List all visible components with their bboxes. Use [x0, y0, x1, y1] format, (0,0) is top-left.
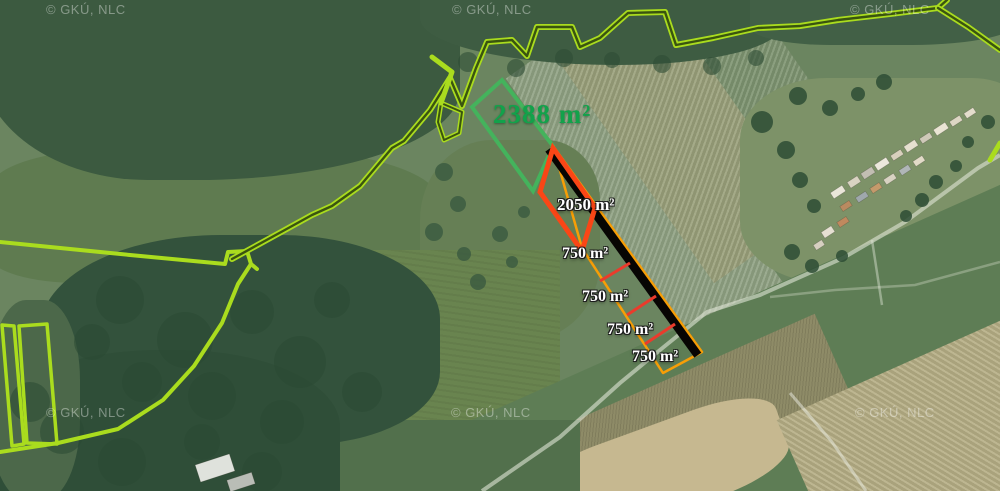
house-roof: [847, 176, 861, 188]
lot-divider-line-1: [600, 263, 630, 281]
house-roof: [890, 149, 903, 161]
lot-divider-line-2: [627, 296, 656, 315]
forest-blob: [230, 290, 274, 334]
house-roof: [883, 173, 896, 185]
watermark-top-center: © GKÚ, NLC: [452, 2, 532, 17]
forest-blob: [74, 324, 110, 360]
forest-blob: [98, 438, 146, 486]
house-roof: [933, 122, 949, 135]
tree-icon: [962, 136, 974, 148]
forest-texture-blobs: [10, 276, 382, 491]
scrub-bushes: [425, 163, 530, 290]
house-roof: [913, 155, 925, 166]
forest-blob: [342, 372, 382, 412]
house-roof: [840, 200, 852, 211]
lot-area-label-3: 750 m²: [607, 321, 653, 339]
forest-blob: [10, 382, 50, 422]
forest-blob: [157, 312, 213, 368]
tree-icon: [805, 259, 819, 273]
house-roof: [813, 240, 825, 250]
forest-blob: [260, 400, 304, 444]
house-roof: [949, 115, 962, 127]
tree-icon: [981, 115, 995, 129]
forest-blob: [314, 282, 350, 318]
forest-blob: [188, 372, 236, 420]
tree-icon: [751, 111, 773, 133]
watermark-top-left: © GKÚ, NLC: [46, 2, 126, 17]
house-roof: [830, 185, 846, 198]
boundary-meander-spur: [432, 57, 452, 103]
tree-icon: [784, 244, 800, 260]
bush-icon: [506, 256, 518, 268]
tree-icon: [836, 250, 848, 262]
tree-icon: [748, 50, 764, 66]
boundary-line-west: [0, 242, 257, 269]
tree-icon: [792, 172, 808, 188]
house-roof: [899, 164, 911, 175]
bush-icon: [470, 274, 486, 290]
tree-icon: [950, 160, 962, 172]
forest-blob: [122, 362, 162, 402]
tree-icon: [604, 52, 620, 68]
tree-icon: [876, 74, 892, 90]
tree-icon: [507, 59, 525, 77]
parcel-area-label-green: 2388 m²: [493, 100, 591, 130]
tree-icon: [851, 87, 865, 101]
tree-icon: [807, 199, 821, 213]
bush-icon: [457, 247, 471, 261]
house-roof: [837, 216, 849, 227]
lot-area-label-2: 750 m²: [582, 288, 628, 306]
road-village-spur: [872, 240, 882, 305]
house-roof: [904, 140, 919, 153]
tree-icon: [929, 175, 943, 189]
house-roof: [870, 182, 882, 193]
forest-blob: [184, 424, 220, 460]
bush-icon: [492, 226, 508, 242]
watermark-bottom-left: © GKÚ, NLC: [46, 405, 126, 420]
tree-icon: [789, 87, 807, 105]
house-roof: [874, 157, 890, 170]
bush-icon: [518, 206, 530, 218]
forest-boundary-branch-east-core: [938, 8, 1000, 50]
bush-icon: [450, 196, 466, 212]
house-roof: [861, 167, 876, 180]
bush-icon: [425, 223, 443, 241]
bush-icon: [435, 163, 453, 181]
house-roof: [855, 191, 868, 203]
green-parcel-outline: [472, 80, 553, 191]
watermark-bottom-right: © GKÚ, NLC: [855, 405, 935, 420]
watermark-bottom-center: © GKÚ, NLC: [451, 405, 531, 420]
tree-icon: [822, 100, 838, 116]
parcel-area-label-red: 2050 m²: [557, 196, 615, 215]
tree-icon: [900, 210, 912, 222]
aerial-map: 2388 m² 2050 m² 750 m² 750 m² 750 m² 750…: [0, 0, 1000, 491]
tree-icon: [653, 55, 671, 73]
tree-icon: [555, 49, 573, 67]
house-roof: [964, 107, 976, 118]
forest-blob: [274, 336, 326, 388]
lot-area-label-4: 750 m²: [632, 348, 678, 366]
road-field-spur: [770, 262, 1000, 297]
forest-blob: [96, 276, 144, 324]
house-roof: [919, 132, 932, 144]
tree-icon: [703, 57, 721, 75]
house-roof: [821, 226, 835, 238]
tree-icon: [777, 141, 795, 159]
lot-area-label-1: 750 m²: [562, 245, 608, 263]
watermark-top-right: © GKÚ, NLC: [850, 2, 930, 17]
tree-icon: [915, 193, 929, 207]
